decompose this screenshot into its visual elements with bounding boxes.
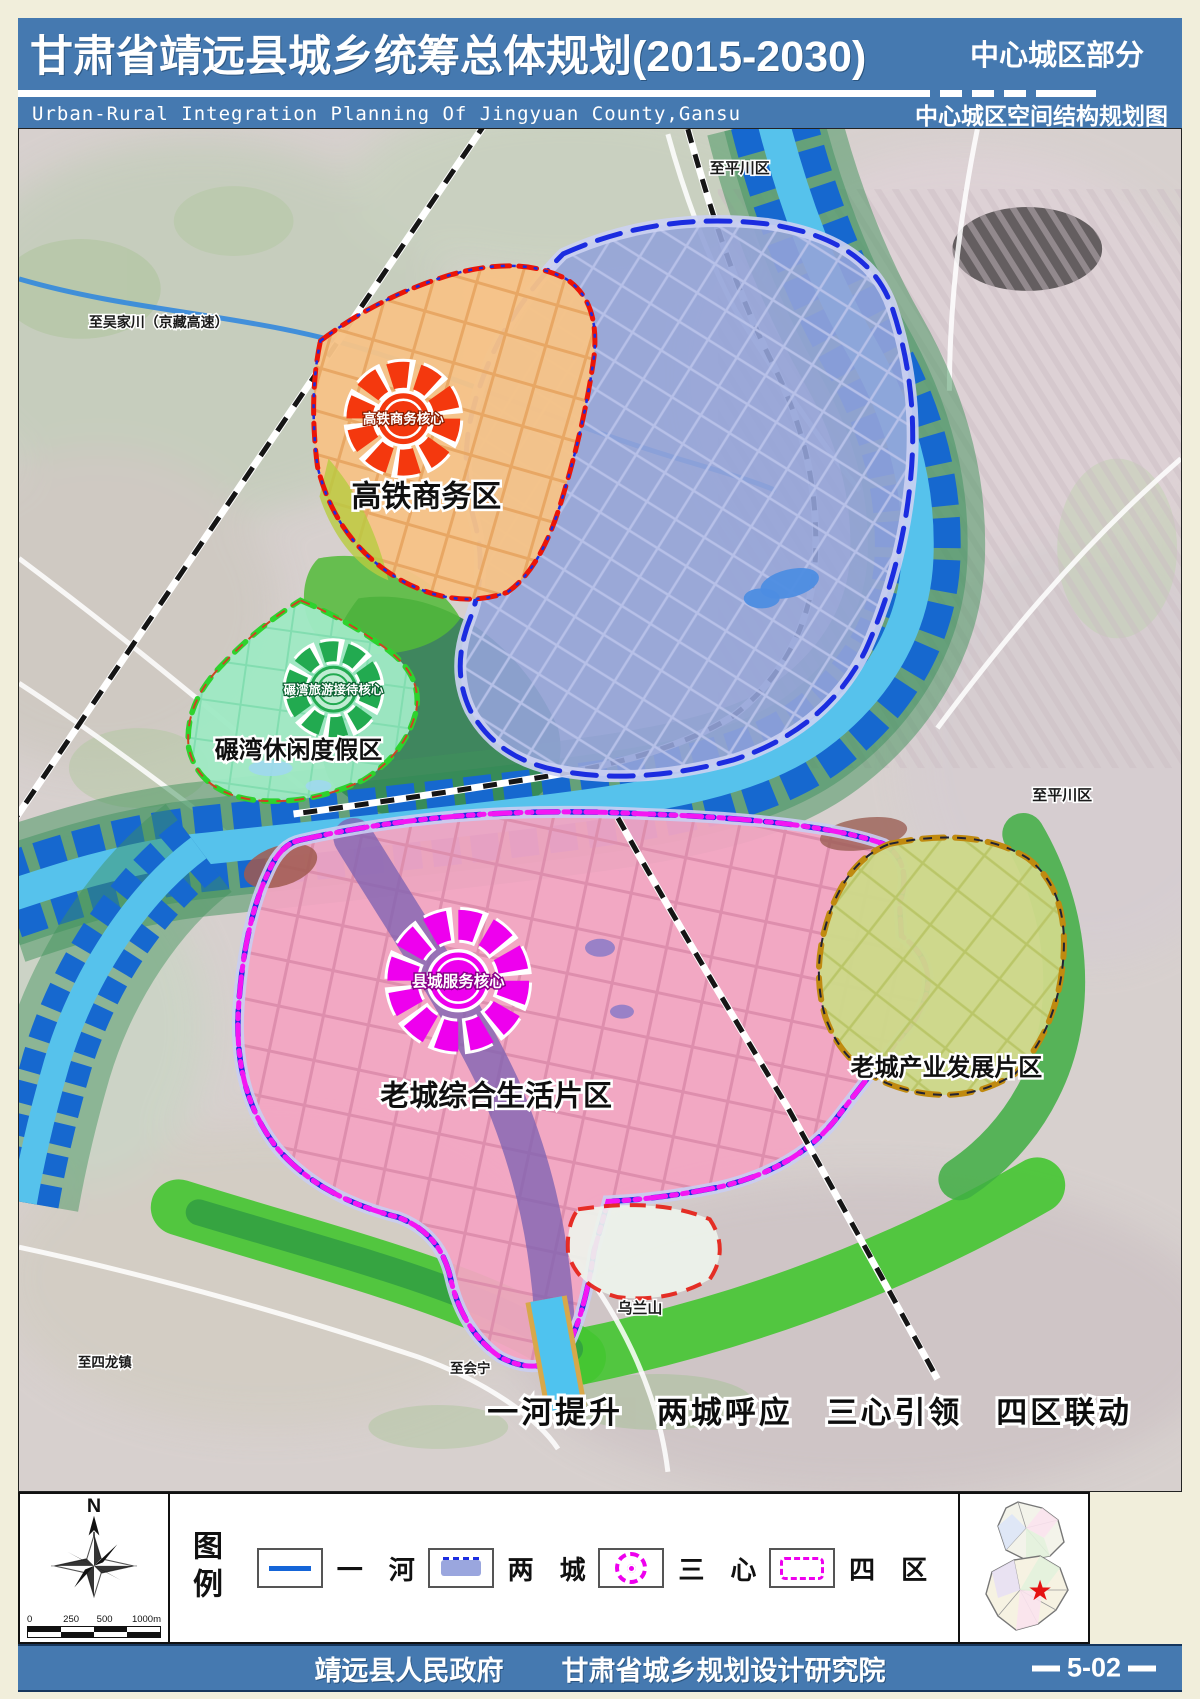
districts-swatch bbox=[769, 1548, 835, 1588]
header: 甘肃省靖远县城乡统筹总体规划(2015-2030) 中心城区部分 Urban-R… bbox=[18, 18, 1182, 128]
label-to-pingchuan-top: 至平川区 bbox=[710, 160, 770, 177]
core-hsr-label: 高铁商务核心 bbox=[363, 411, 444, 427]
label-to-silong: 至四龙镇 bbox=[78, 1354, 132, 1370]
reserve-area bbox=[568, 1205, 720, 1298]
label-to-wujiachuan: 至吴家川（京藏高速） bbox=[89, 314, 229, 330]
legend-items: 一 河 两 城 三 心 四 区 bbox=[226, 1494, 958, 1642]
label-zone-nianwan: 碾湾休闲度假区 bbox=[215, 736, 383, 764]
core-nianwan-label: 碾湾旅游接待核心 bbox=[284, 682, 384, 697]
legend-item-cores: 三 心 bbox=[598, 1548, 756, 1588]
sheet-number-dash-right bbox=[1128, 1665, 1156, 1671]
footer-government: 靖远县人民政府 bbox=[315, 1649, 504, 1688]
label-to-huining: 至会宁 bbox=[450, 1360, 490, 1376]
legend-item-cities: 两 城 bbox=[428, 1548, 586, 1588]
label-zone-oldtown: 老城综合生活片区 bbox=[380, 1079, 612, 1112]
compass-box: N 0 250 500 1000m bbox=[20, 1494, 170, 1642]
subtitle-english: Urban-Rural Integration Planning Of Jing… bbox=[32, 103, 741, 125]
panel-filler bbox=[1090, 1492, 1182, 1644]
label-zone-industry: 老城产业发展片区 bbox=[851, 1054, 1043, 1082]
sheet-number: 5-02 bbox=[1032, 1653, 1156, 1684]
legend-title: 图例 bbox=[182, 1494, 226, 1642]
label-wulanshan: 乌兰山 bbox=[617, 1299, 662, 1317]
planning-map: 高铁商务核心 碾湾旅游接待核心 县城服务核心 高铁商务区 碾湾休闲度假区 老城综… bbox=[19, 129, 1181, 1491]
sheet-number-dash-left bbox=[1032, 1665, 1060, 1671]
locator-inset: ★ bbox=[958, 1494, 1088, 1642]
legend-row: N 0 250 500 1000m bbox=[18, 1492, 1182, 1644]
cities-swatch bbox=[428, 1548, 494, 1588]
label-zone-hsr: 高铁商务区 bbox=[351, 481, 501, 514]
map-sheet-name: 中心城区空间结构规划图 bbox=[915, 97, 1168, 131]
legend-panel: N 0 250 500 1000m bbox=[18, 1492, 1090, 1644]
plan-sheet: 甘肃省靖远县城乡统筹总体规划(2015-2030) 中心城区部分 Urban-R… bbox=[18, 18, 1182, 1692]
river-swatch bbox=[257, 1548, 323, 1588]
label-to-pingchuan-right: 至平川区 bbox=[1032, 787, 1092, 804]
locator-star-icon: ★ bbox=[1027, 1575, 1052, 1606]
compass-rose: N bbox=[31, 1496, 157, 1600]
scale-bar: 0 250 500 1000m bbox=[27, 1614, 161, 1638]
footer: 靖远县人民政府 甘肃省城乡规划设计研究院 5-02 bbox=[18, 1644, 1182, 1692]
compass-n-label: N bbox=[87, 1496, 101, 1517]
cores-swatch bbox=[598, 1548, 664, 1588]
river-south bbox=[546, 1299, 566, 1409]
locator-map: ★ bbox=[968, 1498, 1080, 1638]
legend-item-river: 一 河 bbox=[257, 1548, 415, 1588]
slogan: 一河提升 两城呼应 三心引领 四区联动 bbox=[487, 1395, 1132, 1430]
core-county-label: 县城服务核心 bbox=[412, 972, 505, 991]
page-title: 甘肃省靖远县城乡统筹总体规划(2015-2030) bbox=[30, 22, 866, 84]
region-tag: 中心城区部分 bbox=[970, 32, 1168, 74]
legend-item-districts: 四 区 bbox=[769, 1548, 927, 1588]
footer-institute: 甘肃省城乡规划设计研究院 bbox=[562, 1649, 886, 1688]
core-hsr: 高铁商务核心 bbox=[359, 375, 447, 463]
map-area: 高铁商务核心 碾湾旅游接待核心 县城服务核心 高铁商务区 碾湾休闲度假区 老城综… bbox=[18, 128, 1182, 1492]
